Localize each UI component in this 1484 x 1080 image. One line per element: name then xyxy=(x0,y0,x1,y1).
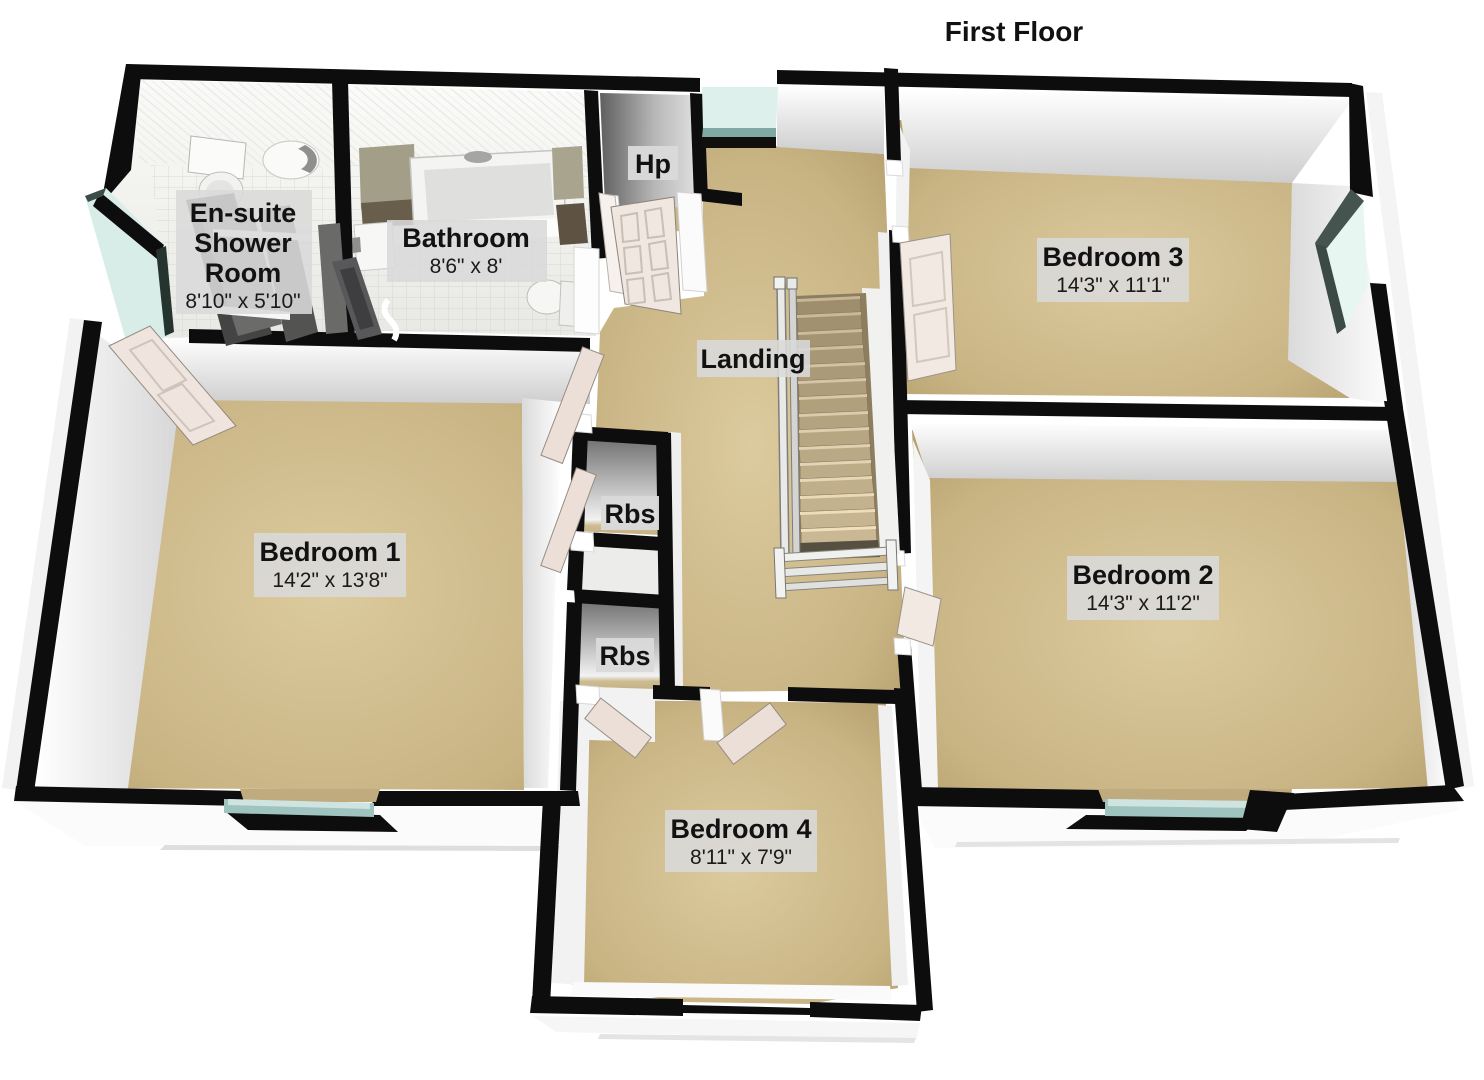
svg-text:14'2" x 13'8": 14'2" x 13'8" xyxy=(272,569,387,592)
svg-text:Hp: Hp xyxy=(635,149,671,179)
svg-text:Bedroom 1: Bedroom 1 xyxy=(259,537,400,567)
svg-text:Shower: Shower xyxy=(194,228,292,258)
svg-text:First Floor: First Floor xyxy=(945,16,1084,47)
svg-text:14'3" x 11'2": 14'3" x 11'2" xyxy=(1086,592,1200,615)
svg-text:Rbs: Rbs xyxy=(599,641,650,671)
svg-text:8'6" x 8': 8'6" x 8' xyxy=(430,255,503,278)
svg-text:14'3" x 11'1": 14'3" x 11'1" xyxy=(1056,274,1170,297)
svg-text:Bedroom 2: Bedroom 2 xyxy=(1072,560,1213,590)
svg-text:Landing: Landing xyxy=(701,344,806,374)
svg-text:Bedroom 3: Bedroom 3 xyxy=(1042,242,1183,272)
svg-text:Bedroom 4: Bedroom 4 xyxy=(670,814,811,844)
svg-text:Rbs: Rbs xyxy=(604,499,655,529)
svg-text:Room: Room xyxy=(205,258,282,288)
svg-text:8'10" x 5'10": 8'10" x 5'10" xyxy=(185,290,300,313)
svg-text:En-suite: En-suite xyxy=(190,198,297,228)
svg-text:Bathroom: Bathroom xyxy=(402,223,530,253)
svg-text:8'11" x 7'9": 8'11" x 7'9" xyxy=(690,846,792,869)
